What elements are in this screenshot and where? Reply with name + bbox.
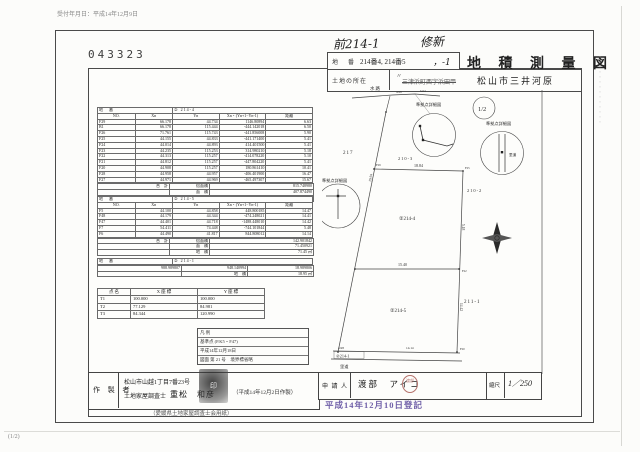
lot-214-4-label: ②214-4 bbox=[399, 216, 416, 222]
table-row: T384.344120.990 bbox=[98, 311, 265, 318]
dim-bottom-left: 4.98 bbox=[338, 346, 344, 350]
point-label: F20 bbox=[460, 347, 465, 351]
table2-body: F544.10044.858448.80018514.47F4844.17944… bbox=[98, 208, 313, 237]
scanned-survey-document: 受付年月日：平成14年12月9日 043323 前214-1 修新 地 番 21… bbox=[0, 0, 640, 452]
handwritten-revision-note: 修新 bbox=[420, 33, 445, 51]
received-date-note: 受付年月日：平成14年12月9日 bbox=[57, 9, 138, 18]
road-label: 里道 bbox=[340, 363, 349, 370]
point-label: F29 bbox=[376, 163, 381, 167]
maker-date-note: （平成14年12月2日作製） bbox=[233, 388, 296, 396]
table1-body: F2966.17844.7341146.808946.63B166.178115… bbox=[98, 119, 313, 183]
applicant-label: 申 請 人 bbox=[322, 381, 348, 390]
maker-address: 松山市山越1丁目7番23号 bbox=[124, 377, 190, 386]
parcel-210-3-label: 210-3 bbox=[398, 156, 413, 161]
lot-number-handwritten: ，-1 bbox=[433, 55, 451, 68]
north-compass-icon bbox=[482, 222, 512, 254]
coordinate-table-214-4: 地 番 ② 214-4 NO. Xn Yn Xn・(Yn+1−Yn-1) 距離 … bbox=[97, 107, 314, 202]
table-row: F644.49041.817844.80801214.14 bbox=[98, 231, 313, 237]
dim-bottom: 14.14 bbox=[406, 346, 414, 350]
scale-label: 縮尺 bbox=[489, 381, 500, 389]
dim-right-lower: 14.42 bbox=[459, 303, 463, 311]
page-half-note: 1/2 bbox=[478, 106, 486, 113]
page-number-note: (1/2) bbox=[8, 434, 20, 440]
area-table-214-1: 地 番 ② 214-1 988.989807948.14099418.98980… bbox=[97, 258, 314, 277]
ref-col-y: Y 座 標 bbox=[198, 289, 265, 296]
table3-body: 988.989807948.14099418.989806地 積18.95 ㎡ bbox=[98, 265, 314, 277]
point-label: F22 bbox=[462, 269, 467, 273]
applicant-seal-stamp: 渡部 bbox=[402, 375, 418, 393]
parcel-217-label: 217 bbox=[343, 151, 354, 156]
reference-point-table: 点 名 X 座 標 Y 座 標 T1100.000100.000T277.129… bbox=[97, 288, 265, 319]
ref-col-x: X 座 標 bbox=[131, 289, 198, 296]
legend-line-1: 凡 例 bbox=[198, 329, 308, 338]
legend-line-2: 基準点 (P.K5・F47) bbox=[198, 338, 308, 347]
scan-edge-right bbox=[621, 6, 622, 446]
parcel-211-1-label: 211-1 bbox=[464, 300, 480, 305]
maker-seal-stamp: 印 bbox=[199, 369, 228, 403]
scale-value: 1／250 bbox=[508, 378, 532, 389]
side-vertical-code: ・・・・・・・・・・・・・・ bbox=[597, 55, 603, 180]
water-dim-a: 4.98 bbox=[396, 90, 402, 94]
applicant-box-divider bbox=[350, 372, 351, 398]
dim-left: 19.94 bbox=[368, 173, 373, 182]
point-label: F25 bbox=[465, 166, 470, 170]
scale-box-divider bbox=[504, 372, 505, 398]
survey-map-drawing: 水路 4.98 5.04 F29 F25 F22 F20 18.84 15.40… bbox=[322, 84, 582, 374]
table-row: T277.12984.981 bbox=[98, 303, 265, 310]
lot-number-value: 214番4, 214番5 bbox=[360, 57, 406, 67]
dim-mid: 15.40 bbox=[398, 262, 407, 267]
table3-lot-value: ② 214-1 bbox=[173, 259, 313, 265]
waterway-label: 水路 bbox=[370, 85, 381, 92]
ref-col-name: 点 名 bbox=[98, 289, 131, 296]
dim-right-upper: 5.18 bbox=[461, 224, 465, 230]
table-row: F2744.97144.969-465.49730715.67 bbox=[98, 177, 313, 183]
dim-top: 18.84 bbox=[414, 163, 423, 168]
union-paper-note: （愛媛県土地家屋調査士会用紙） bbox=[150, 409, 233, 417]
legend-box: 凡 例 基準点 (P.K5・F47) 平成14年12月18日 図面 第 21 号… bbox=[197, 328, 309, 365]
legend-line-3: 平成14年12月18日 bbox=[198, 347, 308, 356]
ref-table-body: T1100.000100.000T277.12984.981T384.34412… bbox=[98, 296, 265, 318]
scan-edge-bottom bbox=[4, 431, 620, 432]
maker-role: 土地家屋調査士 bbox=[124, 391, 166, 400]
table2-summary: 合 計倍面積142.901842面 積71.450921地 積71.45 ㎡ bbox=[98, 238, 314, 255]
table3-lot-label: 地 番 bbox=[98, 259, 173, 265]
detail-circle-c-label: 準拠点詳細図 bbox=[322, 177, 347, 184]
handwritten-previous-lot: 前214-1 bbox=[333, 34, 380, 52]
table-row: T1100.000100.000 bbox=[98, 296, 265, 303]
lot-214-1-label: ②214-1 bbox=[336, 354, 350, 359]
coordinate-table-214-5: 地 番 ② 214-5 NO. Xn Yn Xn・(Yn+1−Yn-1) 距離 … bbox=[97, 196, 314, 256]
water-dim-b: 5.04 bbox=[420, 89, 426, 93]
legend-line-4: 図面 第 21 号 境界標省略 bbox=[198, 356, 308, 364]
detail-circle-b-label: 準拠点詳細図 bbox=[486, 120, 511, 127]
table-row: 地 積71.45 ㎡ bbox=[98, 250, 314, 256]
table-row: 地 積18.95 ㎡ bbox=[98, 271, 314, 277]
registration-stamp: 平成14年12月10日登記 bbox=[325, 399, 423, 411]
road2-label: 里道 bbox=[509, 152, 517, 157]
lot-214-5-label: ②214-5 bbox=[390, 308, 407, 314]
document-number: 043323 bbox=[88, 48, 146, 61]
detail-circle-a-label: 準拠点詳細図 bbox=[416, 101, 441, 108]
parcel-210-2-label: 210-2 bbox=[467, 188, 482, 193]
lot-number-label: 地 番 bbox=[332, 57, 356, 66]
